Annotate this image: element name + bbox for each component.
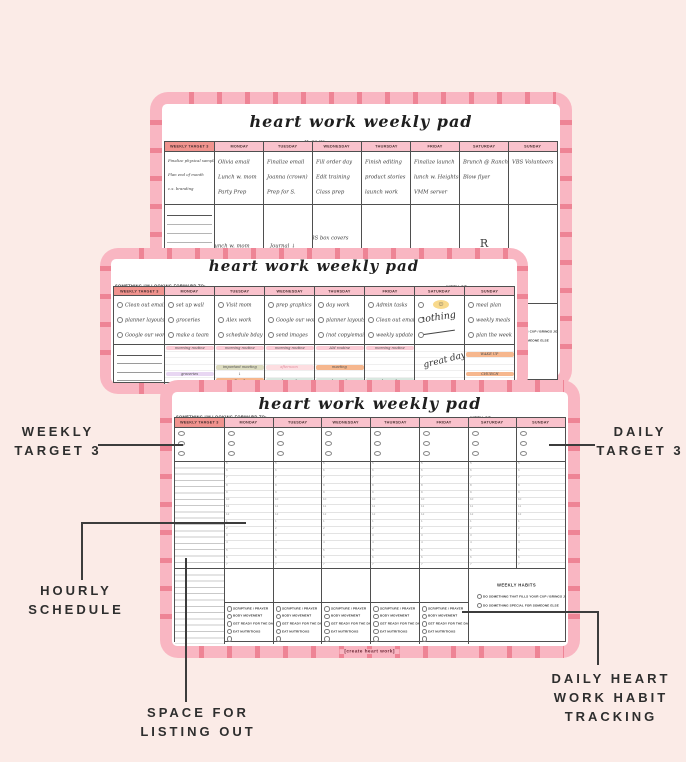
hour-label: 5 [518,549,520,552]
target-row [415,297,464,312]
habit-row: GET READY FOR THE DAY [420,620,468,628]
habit-circle-icon [422,621,428,627]
handwritten-target: Blow flyer [463,173,495,179]
highlight-bar: morning routine [366,346,414,351]
weekly-habits-title: WEEKLY HABITS [469,574,566,592]
target-row: make a team [165,327,214,342]
habit-label: SCRIPTURE / PRAYER [428,607,463,610]
hour-row: 8 [517,484,565,491]
hour-row: 7 [469,563,517,568]
column-header: WEDNESDAY [312,142,361,151]
hour-row: 10 [420,498,468,505]
habit-circle-icon [477,594,483,600]
handwritten-target: Finalize physical sample [168,159,193,163]
hour-label: 12 [372,513,375,516]
weekly-habit-label: DO SOMETHING THAT FILLS YOUR CUP / BRING… [483,595,565,598]
target-circle-icon [268,332,274,338]
hour-label: 4 [518,541,520,544]
target-circle-icon [423,431,430,436]
target-circle-icon [418,302,424,308]
column-header-label: WEDNESDAY [276,289,302,293]
hour-label: 6 [518,469,520,472]
handwritten-target: prep graphics [276,302,312,308]
hour-label: 7 [323,476,325,479]
habit-row: SCRIPTURE / PRAYER [322,605,370,613]
hour-row: 2 [517,527,565,534]
callout-daily-target-3: DAILY TARGET 3 [594,423,686,461]
hour-row: 7 [274,476,322,483]
notes-cell [224,569,273,603]
handwritten-target: Finalize launch [414,158,446,164]
target-row: planner layouts [315,312,364,327]
hour-label: 6 [421,556,423,559]
hour-label: 7 [226,563,228,566]
target-circle-icon [325,441,332,446]
hour-row: 6 [225,469,273,476]
column-header: SUNDAY [516,418,565,427]
handwritten-target: weekly update [376,332,413,338]
habit-row: GET READY FOR THE DAY [225,620,273,628]
hour-row: 2 [274,527,322,534]
hour-label: 8 [421,484,423,487]
hour-row: 10 [469,498,517,505]
handwritten-entry: ↓ [238,372,241,376]
column-header: TUESDAY [273,418,322,427]
hour-row: 4 [420,541,468,548]
hour-label: 9 [275,491,277,494]
hour-label: 9 [372,491,374,494]
highlight-bar: WAKE UP [466,352,514,357]
hour-label: 3 [421,534,423,537]
habit-label: EAT NUTRITIOUS [331,630,358,633]
hour-label: 7 [372,476,374,479]
handwritten-target: launch work [365,188,397,194]
hour-row: 6 [371,469,419,476]
habit-row: GET READY FOR THE DAY [274,620,322,628]
hour-row: 5 [274,549,322,556]
hour-row: 7 [225,563,273,568]
target-row: Clean out email [365,312,414,327]
hour-label: 8 [372,484,374,487]
hour-label: 5 [470,462,472,465]
hour-row: 5 [225,462,273,469]
hour-label: 7 [470,563,472,566]
pad-title: heart work weekly pad [162,112,560,131]
habit-circle-icon [422,606,428,612]
target-circle-icon [472,441,479,446]
habit-row: GET READY FOR THE DAY [322,620,370,628]
handwritten-note: VBS box covers [312,234,349,240]
handwritten-target: set up wall [176,302,204,308]
column-header-label: MONDAY [181,289,199,293]
deep-work-item: Product Stories [167,225,212,234]
hour-label: 10 [226,498,229,501]
hour-row: 2 [469,527,517,534]
notes-cell [419,569,468,603]
hour-label: 11 [372,505,375,508]
hour-row: 8 [274,484,322,491]
hour-row: 11 [469,505,517,512]
target-circle-icon [228,451,235,456]
deep-work-item: Planner Pad [167,216,212,225]
handwritten-target: weekly meals [476,317,510,323]
habit-row: SCRIPTURE / PRAYER [420,605,468,613]
highlight-bar: afternoon [266,365,314,370]
target-circle-icon [117,332,123,338]
hour-label: 6 [421,469,423,472]
grocery-list-item: work yogurt [117,381,162,384]
column-header: SATURDAY [414,287,464,295]
hour-row: 11 [371,505,419,512]
hour-label: 5 [518,462,520,465]
schedule-cell: morning routineafternoonday work [264,345,314,384]
hour-row: 2 [420,527,468,534]
target-row: Clean out email [114,297,164,312]
handwritten-target: Plan end of month [168,173,193,177]
hour-row: 11 [420,505,468,512]
target-row: Admin tasks [365,297,414,312]
column-header-label: SUNDAY [525,144,542,148]
hour-label: 5 [323,462,325,465]
hour-row: 12 [420,513,468,520]
habit-circle-icon [422,629,428,635]
schedule-row: Groceries:beefchickenpastawork yogurtbre… [114,345,514,384]
hour-label: 5 [372,462,374,465]
hour-label: 2 [226,527,228,530]
hour-row: 3 [322,534,370,541]
handwritten-target: Admin tasks [376,302,407,308]
callout-space-for-listing: SPACE FOR LISTING OUT [128,704,268,742]
column-header: MONDAY [224,418,273,427]
target-cell: Clean out emailplanner layoutsGoogle our… [114,296,164,344]
hour-label: 6 [226,469,228,472]
handwritten-target: Alex work [226,317,251,323]
habit-label: SCRIPTURE / PRAYER [282,607,317,610]
column-header: TUESDAY [263,142,312,151]
hour-row: 1 [274,520,322,527]
target-cell: Olivia emailLunch w. momParty Prep [214,152,263,204]
hour-label: 5 [275,549,277,552]
hour-label: 7 [323,563,325,566]
target-circle-icon [468,332,474,338]
target-circle-icon [325,431,332,436]
column-header-label: FRIDAY [436,420,451,424]
hour-label: 2 [518,527,520,530]
habit-row: EAT NUTRITIOUS [371,628,419,636]
handwritten-entry: morning routine [275,346,305,350]
handwritten-target: Fill order day [316,158,348,164]
target-circle-icon [423,451,430,456]
target-circle-icon [228,441,235,446]
column-header-label: TUESDAY [230,289,249,293]
hour-row: 4 [469,541,517,548]
handwritten-target: send images [276,332,308,338]
hour-label: 3 [275,534,277,537]
hour-row: 11 [517,505,565,512]
column-header-label: TUESDAY [288,420,307,424]
hourly-cell: 56789101112123456789 [273,462,322,568]
hour-row: 6 [322,469,370,476]
hour-label: 11 [470,505,473,508]
handwritten-target: Google our work [125,332,164,338]
hour-label: 5 [226,549,228,552]
habit-circle-icon [324,614,330,620]
hour-row: 4 [371,541,419,548]
hour-label: 10 [372,498,375,501]
target-circle-icon [277,451,284,456]
habit-label: BODY MOVEMENT [428,615,457,618]
habit-label: EAT NUTRITIOUS [233,630,260,633]
hour-label: 8 [323,484,325,487]
hour-row: 4 [225,541,273,548]
hour-row: 9 [274,491,322,498]
target-row: Visit mom [215,297,264,312]
handwritten-target: Clean out email [125,302,164,308]
hour-row: 6 [517,469,565,476]
hour-row: 6 [322,556,370,563]
target-row: planner layouts [114,312,164,327]
hour-label: 6 [470,469,472,472]
habit-label: GET READY FOR THE DAY [331,622,370,625]
column-header-label: SATURDAY [481,420,503,424]
hour-label: 12 [323,513,326,516]
target-cell: set up wallgroceriesmake a team [164,296,214,344]
hour-label: 9 [421,491,423,494]
target-circle-icon [218,302,224,308]
hour-row: 10 [225,498,273,505]
product-showcase: heart work weekly pad SOMETHING I'M LOOK… [0,0,686,762]
handwritten-entry: morning routine [225,346,255,350]
target-row: weekly update [365,327,414,342]
hour-label: 10 [518,498,521,501]
habit-label: BODY MOVEMENT [233,615,262,618]
highlight-bar: morning routine [166,346,214,351]
target-cell: Visit momAlex workschedule bday [214,296,264,344]
handwritten-target: planner layouts [125,317,164,323]
hour-label: 11 [323,505,326,508]
habit-label: BODY MOVEMENT [331,615,360,618]
handwritten-target: Google our work [276,317,314,323]
hour-row: 9 [225,491,273,498]
habit-circle-icon [227,606,233,612]
habit-label: SCRIPTURE / PRAYER [331,607,366,610]
hour-label: 9 [470,491,472,494]
hour-label: 7 [421,476,423,479]
target-circle-icon [218,317,224,323]
target-circle-icon [168,332,174,338]
hour-label: 2 [421,527,423,530]
hour-row: 9 [420,491,468,498]
deep-work-item: Schedule Stories [167,234,212,243]
target-circle-icon [117,302,123,308]
grocery-list-item: pasta [117,373,162,382]
hour-row: 3 [274,534,322,541]
hour-row: 3 [469,534,517,541]
hour-row: 5 [371,462,419,469]
column-header: TUESDAY [214,287,264,295]
hour-row: 12 [371,513,419,520]
handwritten-target: Clean out email [376,317,414,323]
hourly-cell: 56789101112123456789 [321,462,370,568]
column-header-label: FRIDAY [427,144,442,148]
hour-row: 6 [225,556,273,563]
hour-label: 4 [275,541,277,544]
hour-row: 12 [322,513,370,520]
highlight-bar: meeting [316,365,364,370]
handwritten-target: Visit mom [226,302,252,308]
handwritten-target: Finish editing [365,158,397,164]
grocery-list-item: beef [117,356,162,365]
hour-row: 4 [322,541,370,548]
brand-footer: [create heart work] [160,639,580,657]
weekly-pad-middle: heart work weekly pad SOMETHING I'M LOOK… [100,248,528,394]
border-ticks-top [166,92,556,104]
hour-label: 12 [518,513,521,516]
handwritten-target: Joanna (crown) [267,173,299,179]
target-cell: VBS Volunteers [508,152,557,204]
target-cell [468,428,517,461]
target-circle-icon [277,431,284,436]
column-header: WEDNESDAY [264,287,314,295]
column-header-row: WEEKLY TARGET 3MONDAYTUESDAYWEDNESDAYTHU… [114,287,514,296]
habit-circle-icon [324,621,330,627]
hour-label: 11 [421,505,424,508]
weekly-habits-box: WEEKLY HABITSDO SOMETHING THAT FILLS YOU… [468,569,566,644]
hour-label: 2 [275,527,277,530]
hour-label: 10 [470,498,473,501]
hour-row: 9 [469,491,517,498]
hour-row: 9 [371,491,419,498]
habit-label: BODY MOVEMENT [282,615,311,618]
hour-row: 3 [420,534,468,541]
target-circle-icon [318,317,324,323]
highlight-bar: ↓ [216,372,264,377]
column-header: WEEKLY TARGET 3 [165,142,214,151]
target-circle-icon [520,431,527,436]
target-circle-icon [418,317,424,323]
target-circle-icon [520,451,527,456]
hour-row: 8 [371,484,419,491]
hour-label: 3 [226,534,228,537]
column-header-label: THURSDAY [375,144,397,148]
hour-label: 5 [372,549,374,552]
hour-row: 6 [469,469,517,476]
column-header-label: MONDAY [230,144,248,148]
hour-row: 11 [225,505,273,512]
handwritten-target: Olivia email [218,158,250,164]
target-row: prep graphics [265,297,314,312]
habit-circle-icon [276,614,282,620]
hour-label: 8 [275,484,277,487]
target-circle-icon [117,317,123,323]
target-cell: meal planweekly mealsplan the week [464,296,514,344]
column-header-row: WEEKLY TARGET 3MONDAYTUESDAYWEDNESDAYTHU… [175,418,565,428]
hour-label: 4 [226,541,228,544]
brand-footer-text: [create heart work] [340,649,400,654]
handwritten-target: Class prep [316,188,348,194]
habit-circle-icon [373,621,379,627]
hour-row: 6 [371,556,419,563]
weekly-habit-row: DO SOMETHING SPECIAL FOR SOMEONE ELSE [469,601,566,610]
hour-label: 2 [470,527,472,530]
handwritten-entry: WAKE UP [481,352,499,356]
hour-label: 2 [323,527,325,530]
handwritten-target: product stories [365,173,397,179]
target-row [415,327,464,342]
column-header: WEDNESDAY [321,418,370,427]
column-header-label: WEDNESDAY [324,144,350,148]
hour-label: 9 [518,491,520,494]
hour-label: 1 [372,520,374,523]
target-row: schedule bday [215,327,264,342]
target-circle-icon [168,302,174,308]
hourly-cell: 56789101112123456789 [419,462,468,568]
habit-row: SCRIPTURE / PRAYER [274,605,322,613]
hour-row: 7 [420,563,468,568]
handwritten-target: (not copy/email) [326,332,364,338]
column-header-label: SATURDAY [473,144,495,148]
handwritten-target: Lunch w. mom [218,173,250,179]
target-cell [321,428,370,461]
hour-row: 8 [420,484,468,491]
habit-label: BODY MOVEMENT [380,615,409,618]
border-ticks-right [516,264,528,378]
hourly-cell: 56789101112123456789 [516,462,565,568]
target-cell: ☺nothing [414,296,464,344]
hour-row: 5 [225,549,273,556]
handwritten-target: Finalize email [267,158,299,164]
callout-weekly-target-3: WEEKLY TARGET 3 [10,423,106,461]
hour-label: 9 [323,491,325,494]
handwritten-target: Prep for S. [267,188,299,194]
handwritten-target: VBS Volunteers [512,158,544,164]
hour-row: 1 [322,520,370,527]
column-header: THURSDAY [361,142,410,151]
target-row: send images [265,327,314,342]
handwritten-target: Party Prep [218,188,250,194]
hour-label: 7 [372,563,374,566]
hour-label: 11 [226,505,229,508]
notes-cell [321,569,370,603]
habit-label: EAT NUTRITIOUS [428,630,455,633]
habit-row: BODY MOVEMENT [274,613,322,621]
column-header: SATURDAY [468,418,517,427]
weekly-habits-title-text: WEEKLY HABITS [497,583,536,587]
hour-row: 12 [225,513,273,520]
hourly-cell: 56789101112123456789 [370,462,419,568]
habit-label: GET READY FOR THE DAY [233,622,272,625]
column-header-label: WEEKLY TARGET 3 [120,289,159,293]
hour-label: 12 [470,513,473,516]
daily-habit-checklist: SCRIPTURE / PRAYERBODY MOVEMENTGET READY… [370,603,419,644]
notes-cell [370,569,419,603]
listing-space-cell [175,462,224,568]
highlight-bar: morning routine [266,346,314,351]
target-row: groceries [165,312,214,327]
border-ticks-right [568,396,580,642]
hour-label: 11 [275,505,278,508]
hour-row: 6 [517,556,565,563]
hourly-cell: 56789101112123456789 [224,462,273,568]
column-header-label: WEDNESDAY [333,420,359,424]
hour-row: 2 [225,527,273,534]
handwritten-target: Brunch @ Ranch [463,158,495,164]
hour-row: 12 [469,513,517,520]
target-cell [273,428,322,461]
deep-work-item: DEEP WORK [167,207,212,216]
hour-label: 5 [323,549,325,552]
daily-habit-checklist: SCRIPTURE / PRAYERBODY MOVEMENTGET READY… [321,603,370,644]
